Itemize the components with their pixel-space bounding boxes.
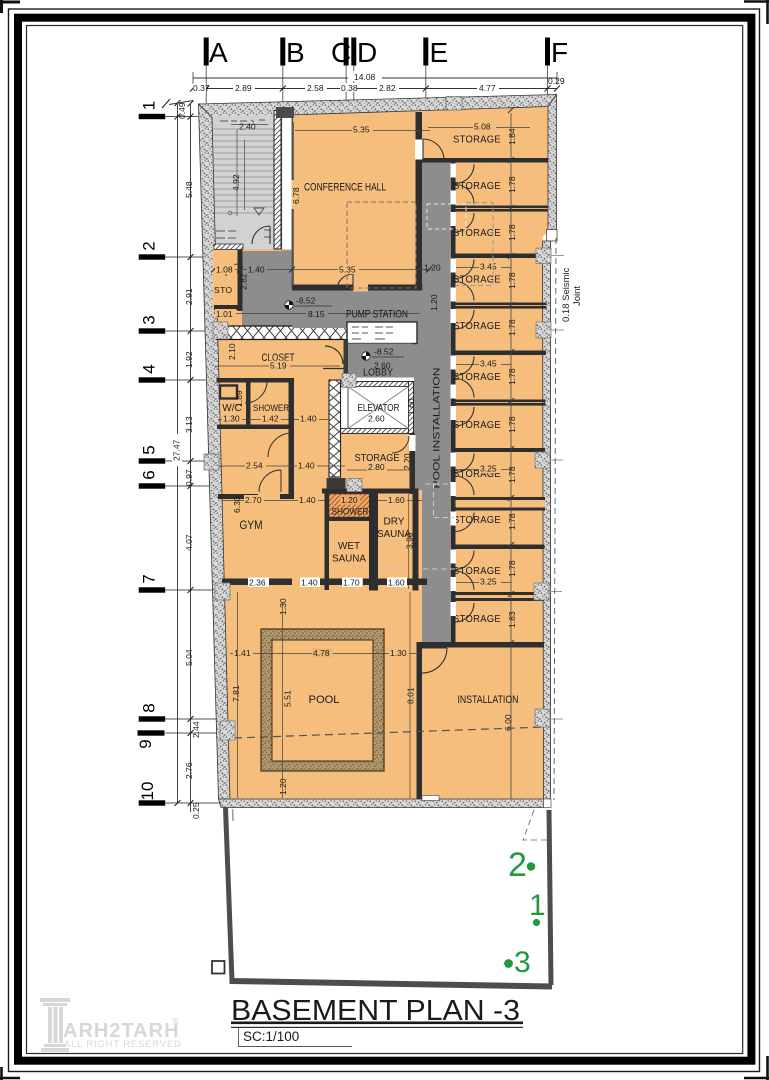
svg-text:6.78: 6.78 xyxy=(291,187,301,204)
svg-text:1.60: 1.60 xyxy=(388,578,405,588)
svg-text:STORAGE: STORAGE xyxy=(453,134,501,146)
svg-text:1.60: 1.60 xyxy=(388,495,405,505)
svg-text:1: 1 xyxy=(140,101,159,110)
svg-text:2.82: 2.82 xyxy=(379,83,396,93)
svg-text:7.81: 7.81 xyxy=(231,685,241,702)
svg-text:3.13: 3.13 xyxy=(184,416,194,433)
svg-text:1.42: 1.42 xyxy=(262,414,279,424)
svg-text:2: 2 xyxy=(508,846,527,884)
svg-text:0.97: 0.97 xyxy=(184,469,194,486)
svg-text:3: 3 xyxy=(514,946,531,979)
svg-text:-8.52: -8.52 xyxy=(374,347,394,357)
svg-text:1.78: 1.78 xyxy=(507,513,517,530)
svg-text:7: 7 xyxy=(140,574,159,583)
svg-text:0.18 Seismic: 0.18 Seismic xyxy=(561,267,572,322)
svg-text:14.08: 14.08 xyxy=(354,72,376,82)
svg-text:8.15: 8.15 xyxy=(308,309,325,319)
svg-text:STORAGE: STORAGE xyxy=(453,565,501,577)
svg-text:D: D xyxy=(357,37,377,68)
svg-text:4.92: 4.92 xyxy=(231,174,241,191)
svg-text:SHOWER: SHOWER xyxy=(253,403,289,414)
svg-text:1.83: 1.83 xyxy=(507,611,517,628)
svg-text:1.78: 1.78 xyxy=(507,416,517,433)
svg-text:STORAGE: STORAGE xyxy=(453,320,501,332)
svg-text:1.40: 1.40 xyxy=(298,461,315,471)
svg-text:SAUNA: SAUNA xyxy=(332,554,366,565)
svg-text:2: 2 xyxy=(140,241,159,250)
svg-text:PUMP STATION: PUMP STATION xyxy=(346,309,408,321)
svg-text:1.20: 1.20 xyxy=(429,294,439,311)
svg-text:2.76: 2.76 xyxy=(184,762,194,779)
svg-text:2.36: 2.36 xyxy=(249,578,266,588)
svg-text:3.45: 3.45 xyxy=(480,262,497,272)
svg-text:2.20: 2.20 xyxy=(402,453,412,470)
svg-text:B: B xyxy=(286,37,305,68)
svg-text:5.51: 5.51 xyxy=(283,690,293,707)
svg-text:2.60: 2.60 xyxy=(368,414,385,424)
svg-text:4: 4 xyxy=(140,364,159,373)
svg-text:3.25: 3.25 xyxy=(480,577,497,587)
svg-text:5.35: 5.35 xyxy=(353,125,370,135)
svg-text:9: 9 xyxy=(136,739,155,748)
svg-text:1.30: 1.30 xyxy=(390,648,407,658)
svg-text:2.58: 2.58 xyxy=(307,83,324,93)
svg-text:3.45: 3.45 xyxy=(480,359,497,369)
svg-text:0.37: 0.37 xyxy=(193,83,210,93)
svg-text:STORAGE: STORAGE xyxy=(453,371,501,383)
svg-text:2.44: 2.44 xyxy=(191,721,201,738)
svg-text:1.08: 1.08 xyxy=(216,265,233,275)
svg-text:1.70: 1.70 xyxy=(343,578,360,588)
svg-text:1.30: 1.30 xyxy=(278,598,288,615)
svg-text:F: F xyxy=(551,37,568,68)
svg-text:1.78: 1.78 xyxy=(507,176,517,193)
svg-text:0.25: 0.25 xyxy=(191,802,201,819)
svg-text:5: 5 xyxy=(140,445,159,454)
svg-text:0.29: 0.29 xyxy=(548,76,565,86)
svg-text:3.25: 3.25 xyxy=(480,464,497,474)
svg-text:1.89: 1.89 xyxy=(234,390,244,407)
svg-text:1.78: 1.78 xyxy=(507,272,517,289)
svg-text:4.78: 4.78 xyxy=(313,648,330,658)
svg-text:LOBBY: LOBBY xyxy=(363,367,393,379)
svg-text:POOL INSTALLATION: POOL INSTALLATION xyxy=(432,367,443,488)
svg-text:4.77: 4.77 xyxy=(479,83,496,93)
svg-text:1.84: 1.84 xyxy=(507,128,517,145)
svg-text:5.04: 5.04 xyxy=(184,649,194,666)
svg-text:1.20: 1.20 xyxy=(278,778,288,795)
svg-text:®: ® xyxy=(172,1016,179,1026)
svg-text:27.47: 27.47 xyxy=(172,439,182,461)
svg-text:2.40: 2.40 xyxy=(239,122,256,132)
svg-text:2.54: 2.54 xyxy=(246,461,263,471)
svg-text:1.78: 1.78 xyxy=(507,319,517,336)
svg-text:1.78: 1.78 xyxy=(507,224,517,241)
svg-text:STORAGE: STORAGE xyxy=(453,274,501,286)
svg-text:0.38: 0.38 xyxy=(341,83,358,93)
svg-text:A: A xyxy=(209,37,228,68)
svg-text:STO: STO xyxy=(214,285,233,295)
svg-text:2.10: 2.10 xyxy=(227,343,237,360)
svg-text:5.19: 5.19 xyxy=(270,361,287,371)
svg-text:SC:1/100: SC:1/100 xyxy=(243,1029,299,1044)
svg-text:INSTALLATION: INSTALLATION xyxy=(458,694,519,706)
svg-text:ELEVATOR: ELEVATOR xyxy=(358,402,400,414)
svg-text:ALL RIGHT RESERVED: ALL RIGHT RESERVED xyxy=(64,1039,182,1050)
svg-text:5.08: 5.08 xyxy=(474,122,491,132)
svg-text:2.91: 2.91 xyxy=(184,288,194,305)
svg-text:1.20: 1.20 xyxy=(341,495,358,505)
svg-text:8: 8 xyxy=(140,703,159,712)
svg-text:CONFERENCE HALL: CONFERENCE HALL xyxy=(304,182,386,194)
svg-text:1.20: 1.20 xyxy=(424,263,441,273)
svg-text:1.40: 1.40 xyxy=(248,265,265,275)
svg-text:1.92: 1.92 xyxy=(184,351,194,368)
svg-text:1.40: 1.40 xyxy=(300,414,317,424)
svg-text:5.48: 5.48 xyxy=(184,181,194,198)
svg-text:2.89: 2.89 xyxy=(235,83,252,93)
svg-text:-8.52: -8.52 xyxy=(296,296,316,306)
svg-text:2.70: 2.70 xyxy=(245,495,262,505)
svg-text:GYM: GYM xyxy=(240,520,263,532)
svg-text:1.40: 1.40 xyxy=(299,495,316,505)
svg-text:1: 1 xyxy=(529,889,546,922)
svg-text:8.01: 8.01 xyxy=(406,687,416,704)
svg-text:STORAGE: STORAGE xyxy=(453,227,501,239)
svg-text:1.78: 1.78 xyxy=(507,368,517,385)
svg-text:1.30: 1.30 xyxy=(223,414,240,424)
svg-text:10: 10 xyxy=(138,782,157,801)
svg-text:6: 6 xyxy=(140,470,159,479)
svg-text:3: 3 xyxy=(140,315,159,324)
svg-text:STORAGE: STORAGE xyxy=(453,180,501,192)
svg-text:2.82: 2.82 xyxy=(239,273,249,290)
svg-text:STORAGE: STORAGE xyxy=(453,514,501,526)
svg-text:1.01: 1.01 xyxy=(216,309,233,319)
svg-text:POOL: POOL xyxy=(309,694,340,706)
svg-text:1.78: 1.78 xyxy=(507,466,517,483)
svg-text:STORAGE: STORAGE xyxy=(453,613,501,625)
svg-text:1.60: 1.60 xyxy=(406,398,416,415)
svg-text:WET: WET xyxy=(338,541,360,552)
svg-text:1.41: 1.41 xyxy=(234,648,251,658)
svg-text:2.80: 2.80 xyxy=(368,462,385,472)
svg-text:6.30: 6.30 xyxy=(232,496,242,513)
svg-text:0.49: 0.49 xyxy=(177,102,187,119)
svg-text:4.07: 4.07 xyxy=(184,534,194,551)
svg-text:1.78: 1.78 xyxy=(507,560,517,577)
svg-text:E: E xyxy=(430,37,449,68)
svg-text:DRY: DRY xyxy=(384,517,405,528)
svg-text:1.40: 1.40 xyxy=(301,578,318,588)
svg-text:Joint: Joint xyxy=(572,286,583,306)
svg-text:5.35: 5.35 xyxy=(339,265,356,275)
svg-text:SHOWER: SHOWER xyxy=(332,507,369,518)
